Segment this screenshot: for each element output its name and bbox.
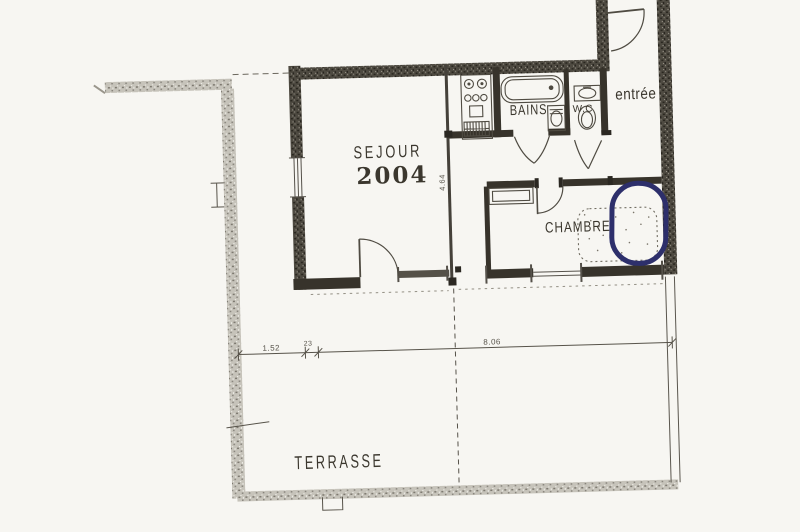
wc-door-arc xyxy=(575,139,603,169)
chambre-door-arc xyxy=(537,186,564,214)
lot-number: 2004 xyxy=(342,161,443,191)
dimension-terrasse-left: 1.52 xyxy=(257,343,285,353)
plan-sheet: SEJOUR 2004 BAINS W.C entrée CHAMBRE TER… xyxy=(0,0,800,532)
bidet-icon xyxy=(548,105,566,130)
room-label-chambre: CHAMBRE xyxy=(545,217,611,236)
section-mark xyxy=(211,183,225,207)
terrasse-door-arc xyxy=(359,238,398,277)
bains-door-arc xyxy=(514,136,550,164)
dimension-sejour-depth: 4.64 xyxy=(437,174,446,191)
washbasin-icon xyxy=(574,85,600,101)
dimension-terrasse-width: 8.06 xyxy=(478,337,506,347)
dimension-terrasse-offset: 23 xyxy=(300,340,316,347)
wardrobe-icon xyxy=(489,187,533,204)
bathtub-icon xyxy=(501,75,564,103)
room-label-entree: entrée xyxy=(615,85,656,104)
blue-ink-oval xyxy=(609,182,668,265)
plan-linework xyxy=(0,0,800,532)
kitchenette-icon xyxy=(461,74,493,139)
room-label-bains: BAINS xyxy=(509,101,547,119)
terrace-walls xyxy=(94,66,681,505)
room-label-sejour: SEJOUR xyxy=(342,140,435,163)
floor-plan-page: SEJOUR 2004 BAINS W.C entrée CHAMBRE TER… xyxy=(0,0,800,532)
room-label-wc: W.C xyxy=(573,104,594,116)
room-label-terrasse: TERRASSE xyxy=(294,451,384,475)
entry-door-arc xyxy=(606,9,645,51)
